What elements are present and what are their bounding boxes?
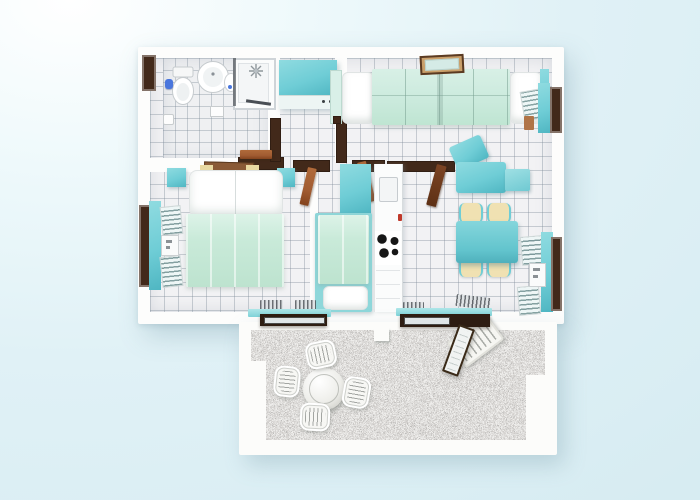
bedroom-window-shutter [149,201,161,290]
bedroom-window-panel [161,235,179,256]
window-latch-mark-3 [533,268,540,271]
patio-chair-right-slats [346,381,366,405]
bed-pillows [189,170,283,217]
bathroom-door-leaf [240,150,272,159]
bedroom-window-louver-bottom [159,255,183,288]
sofa-armrest-left [342,72,374,124]
kitchen-drawers [376,268,400,312]
small-basin-accent [228,85,232,89]
second-bedroom-cabinet [340,164,371,214]
living-window-sill-wood [524,116,534,130]
hall-wardrobe [279,60,337,108]
dining-chair-top-left [459,203,483,223]
shower-faucet [247,62,265,80]
hall-wardrobe-top [279,60,337,95]
kitchen-sink [379,177,398,202]
shower-glass-edge [233,58,236,106]
patio-chair-top-slats [309,344,332,365]
wardrobe-handle-left [322,100,325,103]
patio-chair-left-slats [278,370,296,393]
floor-plan-scene [0,0,700,500]
single-bed-blanket [318,215,369,284]
patio-chair-left [272,365,301,399]
bathroom-window [142,55,156,91]
dining-chair-top-right [487,203,511,223]
patio-table-ring [309,374,339,404]
floor-drain [210,106,224,117]
dining-window-louver-bottom [517,285,541,316]
door-post-hallway-right [336,118,347,163]
dining-window-panel [529,263,546,287]
dining-window-frame [551,237,562,311]
single-bed-pillow [323,286,368,310]
picture-frame-art [425,58,460,71]
terrace-border-notch-left [251,361,266,440]
terrace-border-notch-right [526,375,545,440]
window-latch-mark-4 [533,275,538,278]
toilet [170,66,196,106]
nightstand-left [167,168,186,187]
living-window-shutter [538,83,550,133]
armchair-seat [456,162,506,193]
window-latch-mark-2 [166,246,170,249]
toilet-brush [165,79,173,89]
bed-blanket [186,214,284,287]
living-window-frame [550,87,562,133]
sofa-foot-left [333,116,341,124]
terrace-wall-stub [374,328,389,341]
dining-table [456,221,518,263]
terrace-door-glass-dining [404,317,450,325]
patio-chair-bottom [299,402,330,432]
stove-cooktop [375,231,401,265]
sofa-center-gap [437,69,443,125]
terrace-door-glass-bedroom [264,317,325,324]
toilet-paper-holder [163,114,174,125]
patio-chair-bottom-slats [305,407,326,426]
picture-frame [420,54,465,75]
window-latch-mark-1 [166,240,172,243]
armchair-ottoman [505,169,530,191]
kitchen-red-knob [398,214,402,221]
bedroom-window-louver-top [160,205,184,236]
